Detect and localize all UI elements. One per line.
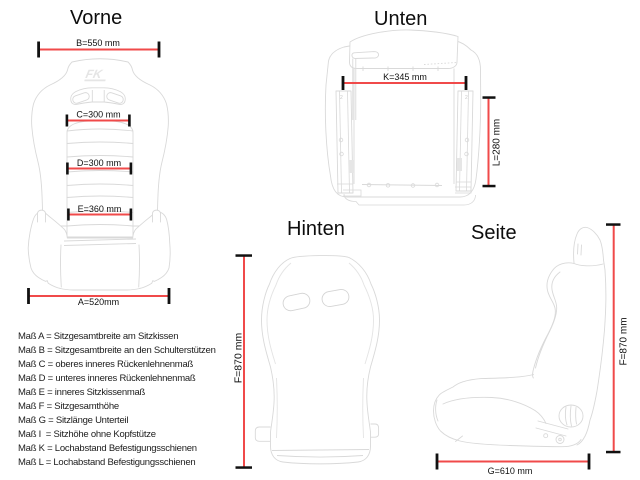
svg-text:D=300 mm: D=300 mm: [77, 158, 121, 168]
svg-text:B=550 mm: B=550 mm: [76, 38, 120, 48]
svg-text:K=345 mm: K=345 mm: [383, 72, 427, 82]
svg-text:C=300 mm: C=300 mm: [76, 110, 120, 120]
svg-text:E=360 mm: E=360 mm: [78, 204, 122, 214]
svg-text:2: 2: [465, 95, 468, 101]
svg-text:2: 2: [340, 95, 343, 101]
svg-text:F=870 mm: F=870 mm: [618, 317, 629, 365]
svg-text:A=520mm: A=520mm: [78, 297, 119, 307]
svg-text:G=610 mm: G=610 mm: [488, 466, 533, 476]
svg-text:F=870 mm: F=870 mm: [233, 333, 245, 384]
svg-text:L=280 mm: L=280 mm: [492, 119, 503, 167]
